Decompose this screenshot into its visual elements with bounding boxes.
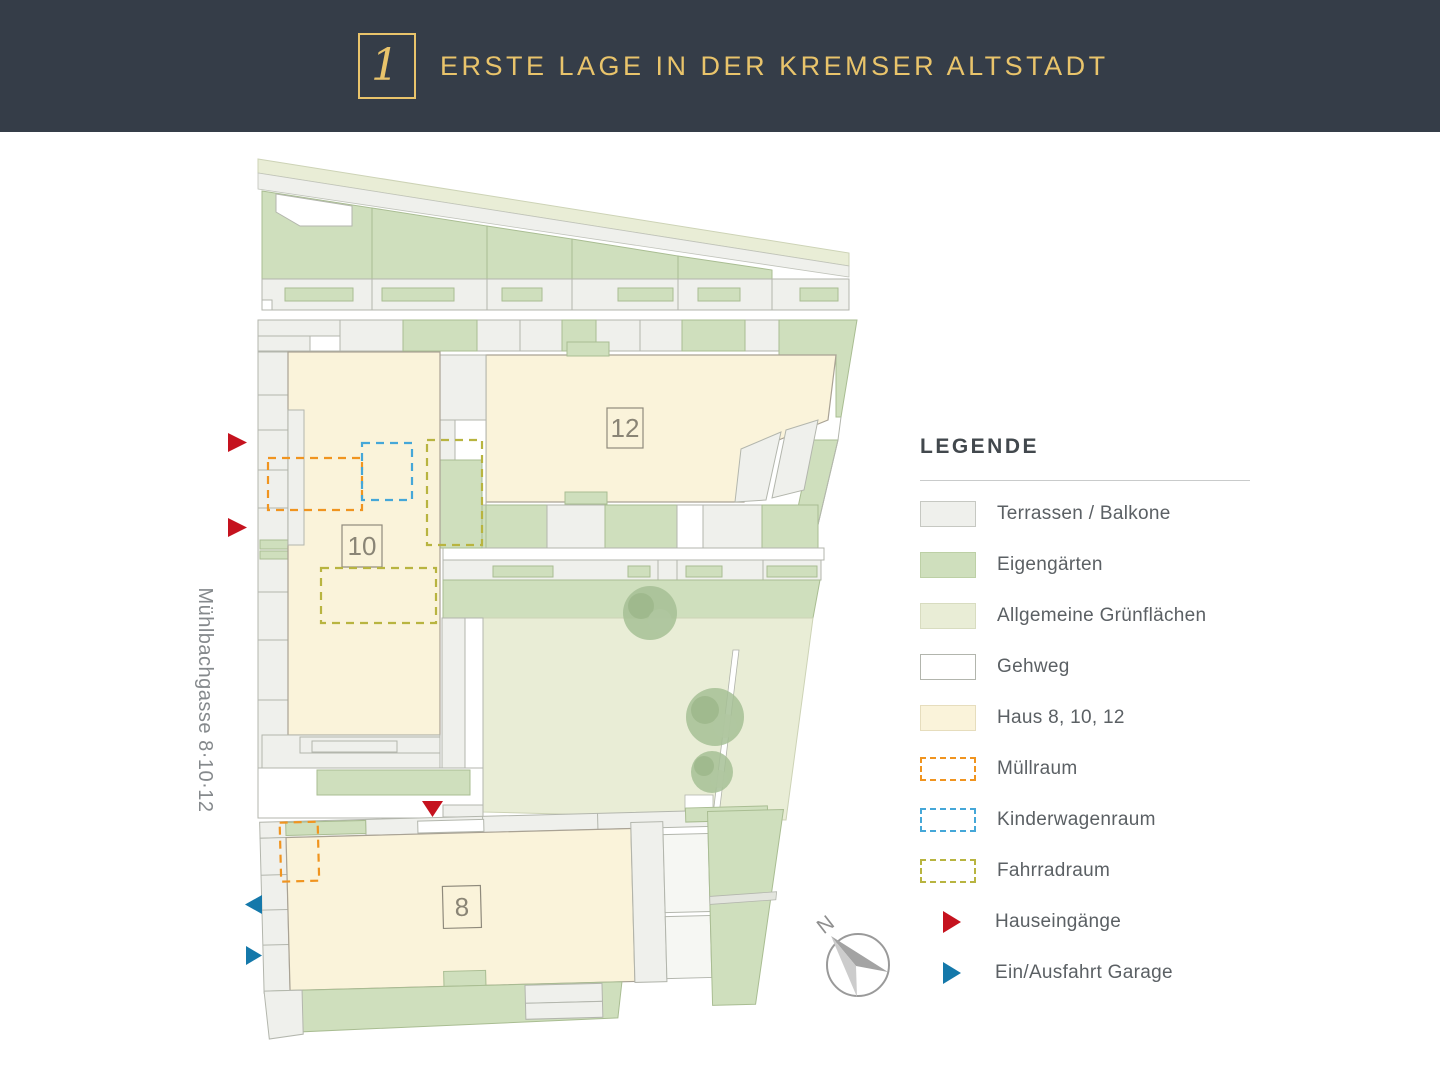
legend-item: Ein/Ausfahrt Garage (920, 959, 1250, 987)
logo: 1 (358, 33, 416, 99)
legend-item: Terrassen / Balkone (920, 500, 1250, 528)
entrance-arrow (228, 433, 247, 452)
building-label-8: 8 (454, 892, 469, 922)
terraces-swatch (920, 501, 976, 527)
common-green-swatch (920, 603, 976, 629)
building-label-12: 12 (611, 413, 640, 443)
header-bar: 1 ERSTE LAGE IN DER KREMSER ALTSTADT (0, 0, 1440, 132)
legend-item: Müllraum (920, 755, 1250, 783)
entrance-arrow-icon (943, 911, 961, 933)
muellraum-swatch (920, 757, 976, 781)
street-label: Mühlbachgasse 8·10·12 (194, 555, 216, 845)
south-walkway (258, 768, 483, 818)
fahrradraum-swatch (920, 859, 976, 883)
legend-item: Kinderwagenraum (920, 806, 1250, 834)
garage-arrow (246, 946, 262, 965)
north-garden-strip (258, 159, 849, 310)
building-12: 12 (486, 342, 836, 504)
garage-arrow (245, 895, 262, 914)
entrance-arrow (228, 518, 247, 537)
legend-item: Gehweg (920, 653, 1250, 681)
legend-item: Hauseingänge (920, 908, 1250, 936)
building-10: 10 (258, 352, 440, 768)
legend-item: Fahrradraum (920, 857, 1250, 885)
compass: N (813, 911, 889, 997)
tree (623, 586, 677, 640)
house-swatch (920, 705, 976, 731)
page-title: ERSTE LAGE IN DER KREMSER ALTSTADT (440, 51, 1109, 82)
mid-band (258, 320, 790, 351)
legend-item: Allgemeine Grünflächen (920, 602, 1250, 630)
building-8-block: 8 (260, 805, 790, 1039)
legend: LEGENDE Terrassen / Balkone Eigengärten … (920, 435, 1250, 1010)
walkway-swatch (920, 654, 976, 680)
private-garden-swatch (920, 552, 976, 578)
compass-north-label: N (813, 911, 839, 938)
logo-glyph: 1 (371, 44, 399, 88)
legend-item: Haus 8, 10, 12 (920, 704, 1250, 732)
kinderwagenraum-swatch (920, 808, 976, 832)
building-label-10: 10 (348, 531, 377, 561)
tree (691, 751, 733, 793)
garage-arrow-icon (943, 962, 961, 984)
tree (686, 688, 744, 746)
legend-item: Eigengärten (920, 551, 1250, 579)
courtyard (483, 586, 813, 823)
legend-title: LEGENDE (920, 435, 1250, 481)
